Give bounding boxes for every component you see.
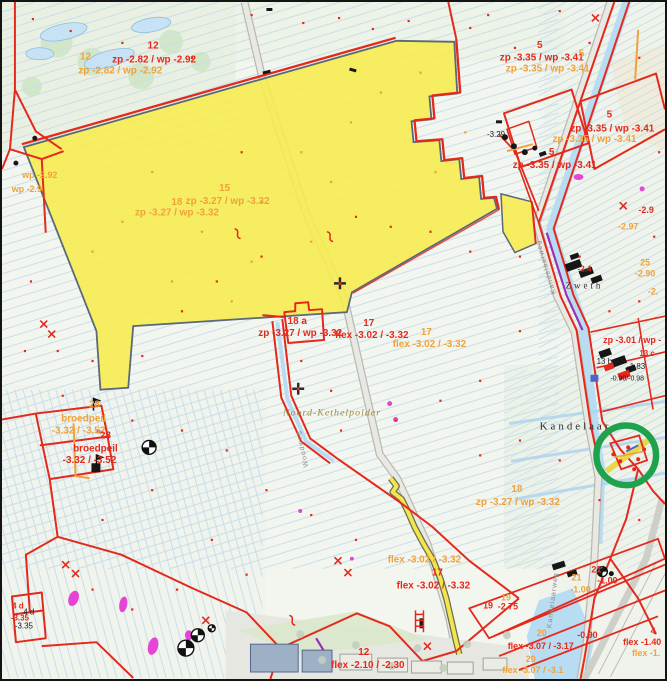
map-label: zp -3.27 / wp -3.32 xyxy=(258,328,342,339)
map-label: 28 xyxy=(100,430,112,441)
place-label-kandelaar: Kandelaar xyxy=(540,420,612,432)
building-block-icon xyxy=(266,8,272,11)
map-dot xyxy=(598,499,600,501)
map-dot xyxy=(408,20,410,22)
map-dot xyxy=(251,14,253,16)
map-label: 18 xyxy=(511,484,523,495)
map-label: 18 a xyxy=(288,316,308,327)
map-dot xyxy=(300,151,302,153)
map-dot xyxy=(226,449,228,451)
map-label: -0.90 xyxy=(577,630,597,640)
map-label: 12 xyxy=(80,52,92,63)
building-block-icon xyxy=(496,120,502,123)
map-dot xyxy=(519,256,521,258)
map-label: 5 xyxy=(607,109,613,120)
map-dot xyxy=(57,350,59,352)
map-dot xyxy=(340,429,342,431)
map-dot xyxy=(171,280,173,282)
map-dot xyxy=(355,216,357,218)
map-label: zp -3.35 / wp -3.41 xyxy=(570,123,654,134)
map-label: 5 xyxy=(579,49,585,60)
map-label: flex -3.07 / -3.1 xyxy=(502,665,563,675)
map-dot xyxy=(479,380,481,382)
map-label: -3.35 xyxy=(15,621,34,630)
map-label: 20 xyxy=(526,654,536,664)
map-dot xyxy=(302,22,304,24)
map-dot xyxy=(141,355,143,357)
map-dot xyxy=(390,226,392,228)
map-label: wp -2.9 xyxy=(11,184,42,194)
map-label: zp -3.27 / wp -3.32 xyxy=(476,497,560,508)
map-symbol-dot xyxy=(522,149,528,155)
pump-station-icon xyxy=(178,640,194,656)
map-label: -0.90/-0.98 xyxy=(610,376,644,383)
map-dot xyxy=(429,231,431,233)
map-label: -3.32 / -3.52 xyxy=(63,455,117,466)
pump-station-icon xyxy=(191,629,204,642)
map-canvas[interactable]: 12zp -2.82 / wp -2.9212zp -2.82 / wp -2.… xyxy=(2,2,665,679)
map-label: -3.29 xyxy=(487,130,506,139)
map-dot xyxy=(658,151,660,153)
map-dot xyxy=(338,17,340,19)
map-dot xyxy=(91,251,93,253)
map-dot xyxy=(439,400,441,402)
map-dot xyxy=(350,121,352,123)
map-label: 28 xyxy=(89,400,101,411)
map-dot xyxy=(310,241,312,243)
map-dot xyxy=(330,181,332,183)
pump-station-icon xyxy=(142,440,156,454)
map-label: 13 c xyxy=(639,349,655,358)
map-dot xyxy=(62,395,64,397)
map-label: zp -3.27 / wp -3.32 xyxy=(135,208,219,219)
map-dot xyxy=(30,280,32,282)
map-dot xyxy=(201,231,203,233)
map-label: zp -2.82 / wp -2.92 xyxy=(78,66,162,77)
map-label: flex -3.02 / -3.32 xyxy=(388,555,462,566)
map-label: -3.32 / -3.52 xyxy=(52,425,106,436)
map-label: flex -3.07 / -3.17 xyxy=(508,641,574,651)
map-label: -2.4 xyxy=(578,264,592,273)
map-label: Zweth xyxy=(566,280,604,290)
map-dot xyxy=(479,454,481,456)
map-dot xyxy=(176,589,178,591)
map-page: 12zp -2.82 / wp -2.9212zp -2.82 / wp -2.… xyxy=(0,0,667,681)
map-label: 17 xyxy=(432,568,444,579)
map-label: zp -3.35 / wp -3.41 xyxy=(506,64,590,75)
map-label: 15 xyxy=(219,183,231,194)
place-label-noord-kethelpolder: Noord-Kethelpolder xyxy=(282,408,381,419)
map-dot xyxy=(559,10,561,12)
map-label: -2.90 xyxy=(635,268,655,278)
map-dot xyxy=(330,390,332,392)
map-label: 5 xyxy=(537,40,543,51)
map-label: -2.9 xyxy=(638,205,653,215)
pump-station-icon xyxy=(208,625,215,632)
map-dot xyxy=(246,574,248,576)
map-label: -1.00 xyxy=(597,576,617,586)
map-label: zp -3.35 / wp -3.41 xyxy=(513,160,597,171)
map-dot xyxy=(469,27,471,29)
map-dot xyxy=(395,420,397,422)
map-label: 13 b xyxy=(597,357,613,366)
map-dot xyxy=(434,171,436,173)
map-dot xyxy=(265,489,267,491)
map-label: zp -2.82 / wp -2.92 xyxy=(112,55,196,66)
map-dot xyxy=(519,439,521,441)
map-label: flex -3.02 / -3.32 xyxy=(397,581,471,592)
map-dot xyxy=(588,42,590,44)
map-label: 12 xyxy=(358,647,370,658)
map-label: 5 xyxy=(549,147,555,158)
map-label: zp -3.35 / wp -3.41 xyxy=(552,134,636,145)
map-dot xyxy=(260,256,262,258)
map-dot xyxy=(419,72,421,74)
map-dot xyxy=(131,420,133,422)
map-dot xyxy=(91,589,93,591)
map-label: 17 xyxy=(421,327,433,338)
map-dot xyxy=(579,256,581,258)
map-dot xyxy=(216,280,218,282)
map-label: 25 xyxy=(640,257,650,267)
map-dot xyxy=(638,300,640,302)
map-dot xyxy=(300,360,302,362)
map-label: -1.00 xyxy=(570,584,590,594)
map-label: 17 xyxy=(363,318,375,329)
map-dot xyxy=(231,300,233,302)
map-dot xyxy=(638,519,640,521)
map-dot xyxy=(151,489,153,491)
map-dot xyxy=(653,236,655,238)
map-label: 21 xyxy=(572,573,582,583)
map-dot xyxy=(310,514,312,516)
map-dot xyxy=(32,18,34,20)
map-dot xyxy=(469,251,471,253)
map-dot xyxy=(70,30,72,32)
map-symbol-dot xyxy=(511,143,517,149)
map-dot xyxy=(101,519,103,521)
map-dot xyxy=(181,310,183,312)
map-label: flex -2.10 / -2.30 xyxy=(331,660,405,671)
map-dot xyxy=(464,131,466,133)
map-dot xyxy=(241,151,243,153)
map-label: zp -3.27 / wp -3.32 xyxy=(186,196,270,207)
map-label: 18 xyxy=(171,197,183,208)
map-label: 4 d xyxy=(12,601,24,610)
map-dot xyxy=(211,539,213,541)
map-dot xyxy=(251,260,253,262)
map-symbol-dot xyxy=(13,161,18,166)
map-label: broedpeil xyxy=(73,443,118,454)
map-label: 19 xyxy=(483,600,493,610)
map-label: broedpeil xyxy=(61,414,106,425)
map-dot xyxy=(559,459,561,461)
map-dot xyxy=(487,14,489,16)
map-label: 12 xyxy=(148,41,160,52)
map-dot xyxy=(121,42,123,44)
map-dot xyxy=(181,429,183,431)
map-dot xyxy=(519,330,521,332)
map-label: 4 xyxy=(651,626,656,636)
map-dot xyxy=(151,171,153,173)
map-dot xyxy=(355,539,357,541)
map-dot xyxy=(638,57,640,59)
map-dot xyxy=(380,92,382,94)
map-dot xyxy=(91,360,93,362)
map-label: -2. xyxy=(648,286,658,296)
map-dot xyxy=(514,47,516,49)
map-dot xyxy=(24,350,26,352)
map-label: -1.83 xyxy=(627,362,646,371)
map-label: flex -1.40 xyxy=(623,637,661,647)
map-symbol-dot xyxy=(32,136,37,141)
map-label: 20 xyxy=(537,628,547,638)
map-label: 21 xyxy=(591,565,601,575)
map-label: zp -3.35 / wp -3.41 xyxy=(500,53,584,64)
water-structure-icon xyxy=(590,375,598,382)
map-label: zp -3.01 / wp - xyxy=(603,335,661,345)
map-label: flex -3.02 / -3.32 xyxy=(393,339,467,350)
map-label: wp -2.92 xyxy=(21,170,57,180)
map-label: -2.75 xyxy=(498,601,518,611)
map-symbol-dot xyxy=(532,146,537,151)
map-dot xyxy=(131,608,133,610)
map-label: flex -1. xyxy=(632,648,660,658)
map-dot xyxy=(121,221,123,223)
map-label: -2.97 xyxy=(618,222,638,232)
map-dot xyxy=(372,28,374,30)
map-dot xyxy=(608,310,610,312)
